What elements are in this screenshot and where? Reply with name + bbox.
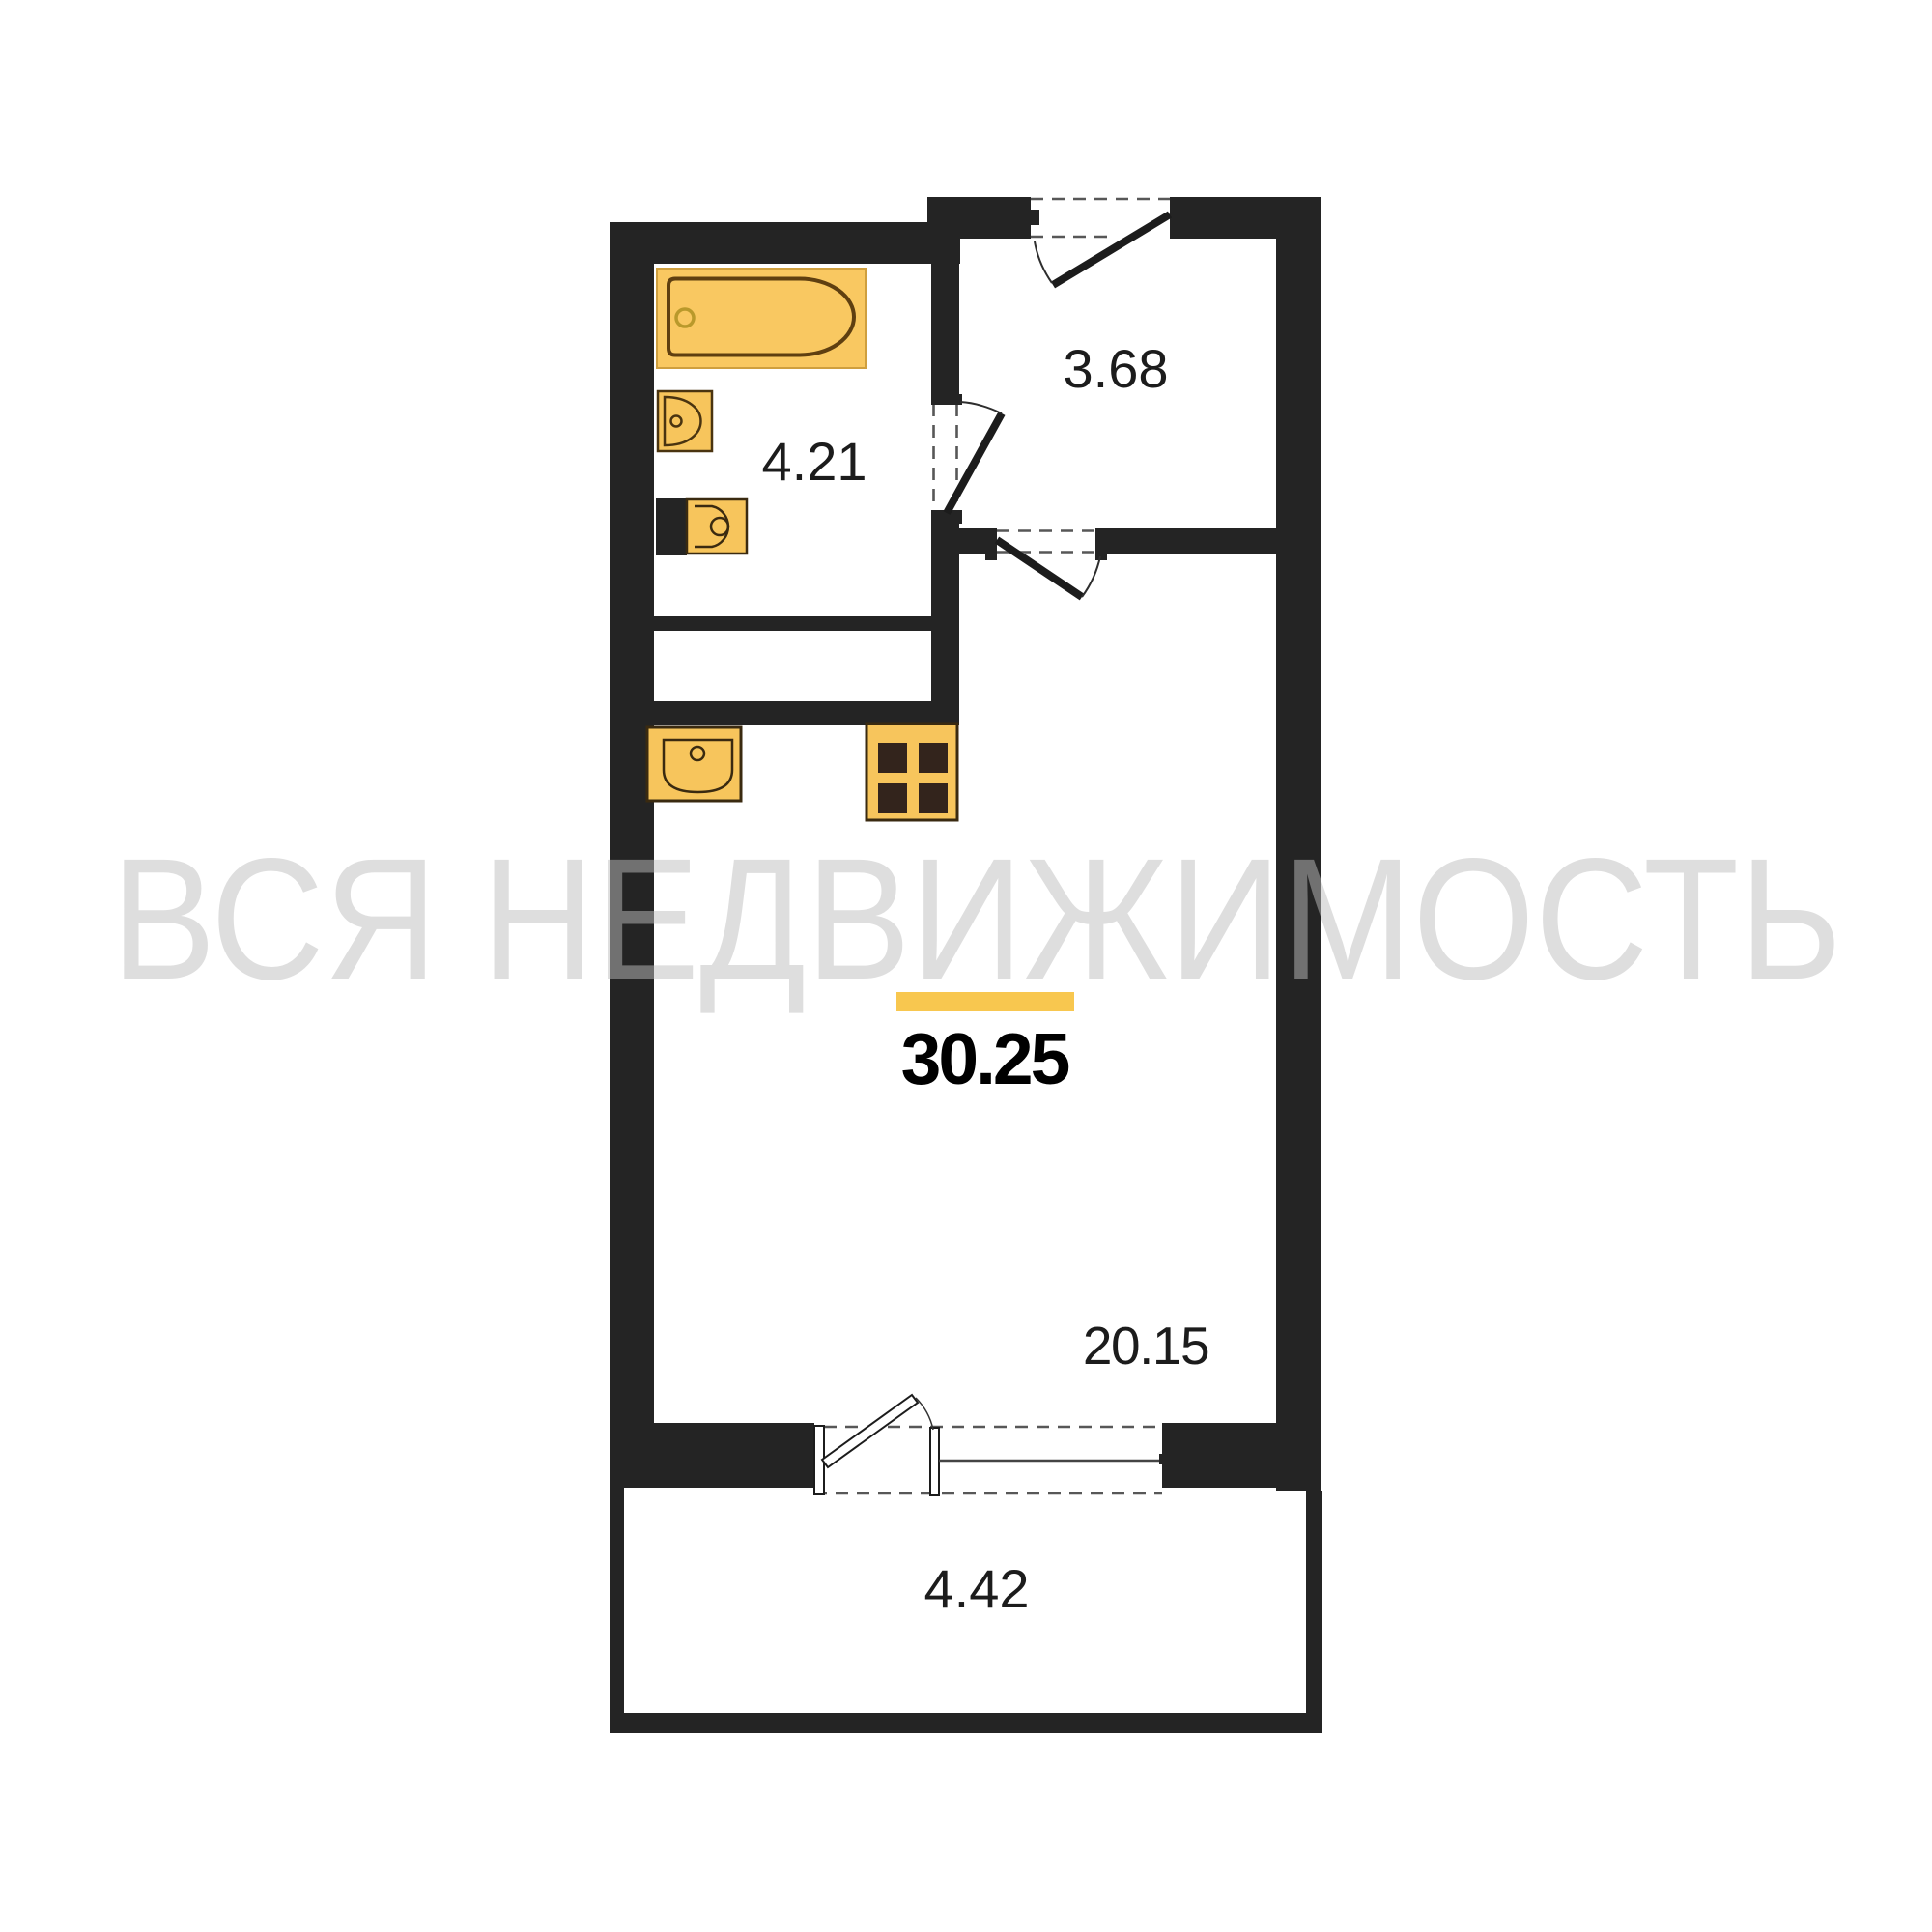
svg-text:4.21: 4.21	[762, 431, 867, 492]
svg-text:4.42: 4.42	[924, 1558, 1030, 1619]
svg-text:30.25: 30.25	[901, 1018, 1069, 1099]
svg-text:20.15: 20.15	[1083, 1316, 1208, 1376]
svg-text:ВСЯ НЕДВИЖИМОСТЬ: ВСЯ НЕДВИЖИМОСТЬ	[111, 822, 1842, 1015]
svg-text:3.68: 3.68	[1064, 338, 1169, 399]
